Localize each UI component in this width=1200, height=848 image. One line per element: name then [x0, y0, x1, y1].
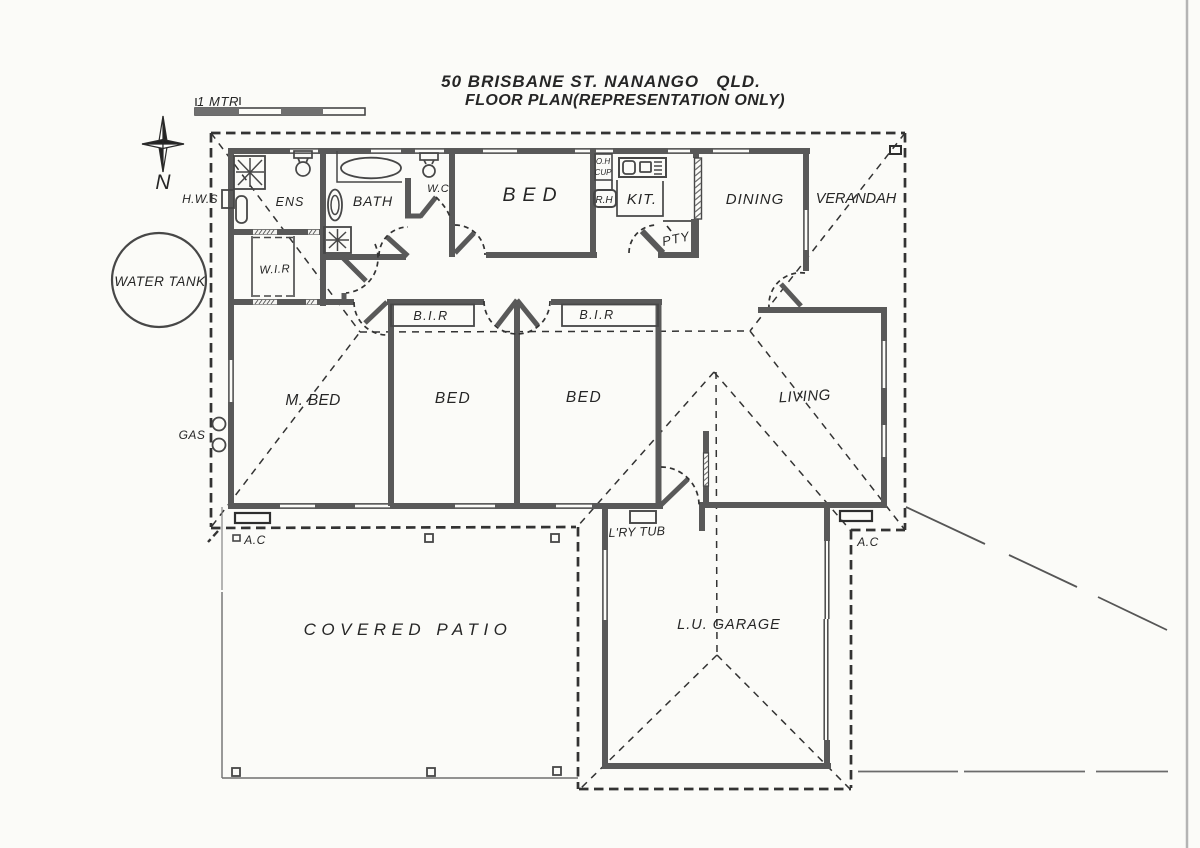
- svg-text:M. BED: M. BED: [285, 392, 340, 409]
- svg-text:N: N: [155, 171, 171, 194]
- svg-text:PTY: PTY: [661, 228, 692, 249]
- svg-text:VERANDAH: VERANDAH: [816, 191, 897, 207]
- svg-text:BED: BED: [566, 389, 602, 406]
- svg-text:B.I.R: B.I.R: [413, 309, 448, 323]
- svg-text:LʹRY TUB: LʹRY TUB: [608, 524, 665, 540]
- svg-text:BED: BED: [435, 390, 471, 407]
- svg-text:ENS: ENS: [276, 195, 305, 209]
- svg-text:50 BRISBANE ST. NANANGO QLD.: 50 BRISBANE ST. NANANGO QLD.: [441, 72, 761, 91]
- svg-text:CUP: CUP: [595, 168, 613, 177]
- svg-text:DINING: DINING: [726, 191, 785, 208]
- svg-text:BED: BED: [502, 184, 563, 206]
- svg-text:1 MTR: 1 MTR: [197, 94, 239, 109]
- svg-text:W.C: W.C: [427, 183, 449, 195]
- svg-text:W.I.R: W.I.R: [259, 263, 290, 277]
- svg-text:H.W.S: H.W.S: [182, 192, 218, 206]
- svg-text:LIVING: LIVING: [778, 387, 831, 407]
- svg-text:A.C: A.C: [243, 533, 266, 547]
- svg-text:R.H: R.H: [595, 195, 613, 206]
- svg-text:L.U. GARAGE: L.U. GARAGE: [677, 617, 781, 633]
- svg-text:B.I.R: B.I.R: [579, 308, 614, 322]
- svg-text:A.C: A.C: [856, 535, 879, 549]
- svg-text:WATER TANK: WATER TANK: [114, 274, 206, 289]
- svg-text:COVERED PATIO: COVERED PATIO: [304, 620, 513, 639]
- svg-text:GAS: GAS: [179, 428, 206, 442]
- svg-text:FLOOR PLAN(REPRESENTATION ONLY: FLOOR PLAN(REPRESENTATION ONLY): [465, 92, 785, 109]
- svg-text:KIT.: KIT.: [627, 191, 657, 208]
- svg-text:O.H: O.H: [596, 157, 610, 166]
- svg-text:BATH: BATH: [353, 193, 393, 209]
